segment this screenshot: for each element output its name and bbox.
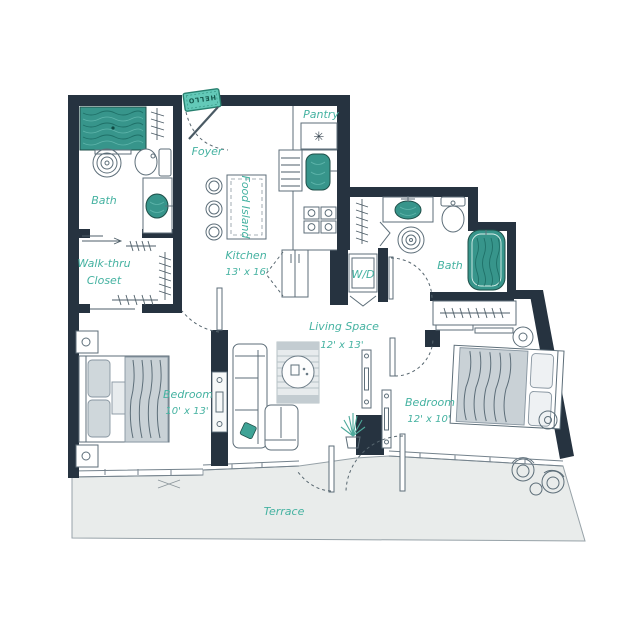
blanket — [456, 348, 528, 425]
shower — [80, 107, 146, 154]
doormat: HELLO — [183, 89, 221, 112]
label-bedroom-second: Bedroom — [405, 396, 455, 409]
closet-hangers-right — [159, 252, 171, 300]
floor-plan-drawing: Terrace HELLO — [0, 0, 634, 634]
fridge — [266, 250, 308, 297]
kitchen-island: Food Island — [227, 175, 266, 240]
pillow — [88, 400, 110, 437]
kitchen-door-leaf — [217, 288, 222, 330]
label-kitchen-dims: 13' x 16' — [225, 267, 268, 278]
walk-thru-closet: Walk-thru Closet — [77, 241, 171, 309]
hall-closet-hangers — [356, 199, 368, 244]
bath2-door-swing — [391, 258, 432, 299]
wall-wd-east — [378, 248, 388, 302]
label-terrace: Terrace — [264, 505, 305, 518]
bedroom2-door-leaf — [390, 338, 395, 376]
side-table-1 — [513, 327, 533, 347]
label-living-dims: 12' x 13' — [320, 340, 363, 351]
bath2-toilet — [441, 197, 465, 232]
kitchen-sink — [306, 154, 337, 190]
floor-plan: Terrace HELLO — [0, 0, 634, 634]
closet-hangers-bottom — [112, 295, 158, 305]
bath-main-rug — [93, 149, 121, 177]
wall-bath1-closet-a — [68, 229, 90, 238]
bed-main — [79, 356, 169, 442]
pillow — [530, 353, 554, 388]
bath-main-toilet — [135, 149, 171, 176]
terrace-door-leaf-bedroom2 — [400, 434, 405, 491]
wall-closet-south-a — [68, 304, 90, 313]
wd-bifold — [350, 296, 376, 306]
entry-door-leaf — [189, 107, 218, 139]
closet2-slider-2 — [475, 328, 513, 333]
label-bedroom-second-dims: 12' x 10' — [407, 414, 450, 425]
shower-drain — [111, 126, 114, 129]
wall-right-upper — [507, 222, 516, 299]
pillow — [88, 360, 110, 397]
coffee-table — [282, 356, 314, 388]
label-foyer: Foyer — [192, 145, 224, 158]
label-bath-second: Bath — [437, 259, 463, 272]
wall-living-bed2 — [356, 415, 384, 455]
closet-hangers-top — [126, 241, 156, 251]
label-closet-line1: Walk-thru — [77, 257, 130, 270]
bath-main-vanity — [143, 178, 173, 233]
stove — [304, 207, 336, 233]
bedroom-main: Bedroom 10' x 13' — [76, 331, 213, 467]
closet-second — [433, 301, 516, 333]
label-bedroom-main-dims: 10' x 13' — [165, 406, 208, 417]
bath-second: Bath — [383, 196, 505, 299]
label-food-island: Food Island — [239, 176, 252, 240]
pillow — [528, 391, 552, 426]
bathtub — [468, 230, 505, 290]
wall-closet-east — [173, 238, 182, 313]
label-wd: W/D — [351, 268, 374, 281]
window-bedroom-main — [72, 469, 203, 477]
media-console — [212, 372, 227, 432]
wall-bath1-east — [173, 95, 182, 238]
label-living: Living Space — [309, 320, 379, 333]
label-bath-main: Bath — [91, 194, 117, 207]
wall-left — [68, 95, 79, 478]
wall-bath2-north — [347, 187, 478, 197]
wall-kitchen-east — [337, 95, 350, 250]
kitchen: ✳ Pantry Food Island — [182, 106, 339, 332]
closet2-slider-1 — [436, 325, 473, 330]
kitchen-door-swing — [182, 311, 219, 332]
label-kitchen: Kitchen — [225, 249, 266, 262]
bath2-vanity — [383, 196, 433, 222]
entry-closet-hangers — [151, 108, 164, 140]
wall-top-left — [68, 95, 182, 106]
pantry-symbol: ✳ — [314, 130, 325, 145]
dish-rack — [279, 150, 302, 191]
nightstand-1 — [76, 331, 98, 353]
nightstand-2 — [76, 445, 98, 467]
bath2-door-leaf — [389, 257, 393, 299]
hall-closet-bifold — [380, 222, 390, 246]
bar-stools — [206, 178, 222, 240]
wall-top-right — [218, 95, 350, 106]
terrace-door-leaf-living — [329, 446, 334, 492]
label-pantry: Pantry — [303, 108, 339, 121]
label-bedroom-main: Bedroom — [163, 388, 213, 401]
bath2-rug — [398, 227, 424, 253]
wall-fridge-wd — [330, 250, 348, 305]
bath-main: Bath — [80, 107, 173, 244]
label-closet-line2: Closet — [87, 274, 122, 287]
wall-closet2-stub — [425, 330, 440, 347]
wall-bath2-south — [430, 292, 514, 301]
